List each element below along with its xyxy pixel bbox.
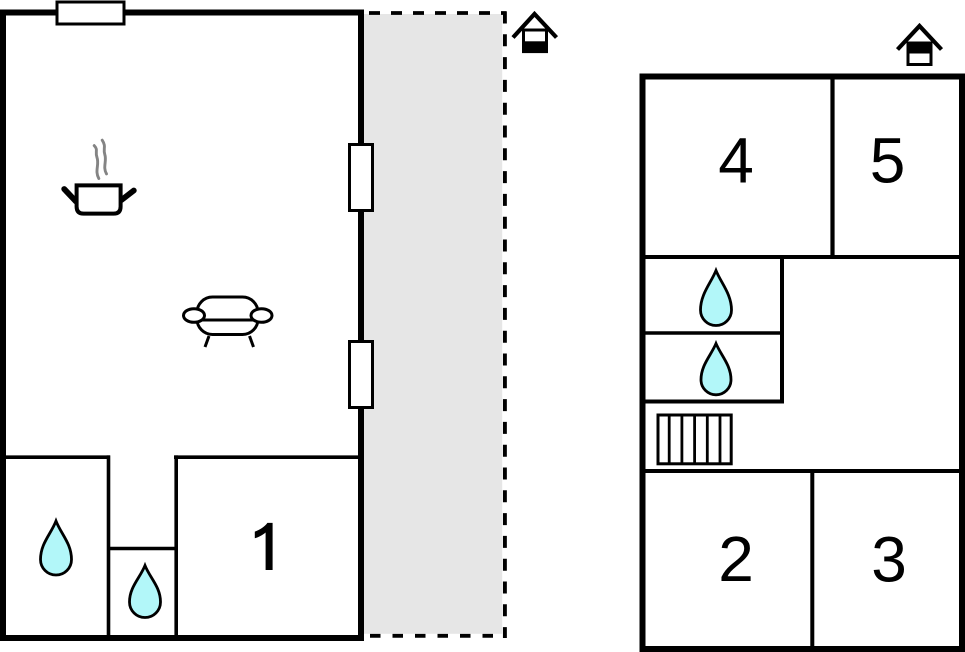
svg-text:3: 3 (871, 524, 907, 596)
svg-text:2: 2 (718, 523, 754, 595)
svg-text:4: 4 (718, 125, 754, 197)
svg-text:5: 5 (870, 125, 906, 197)
